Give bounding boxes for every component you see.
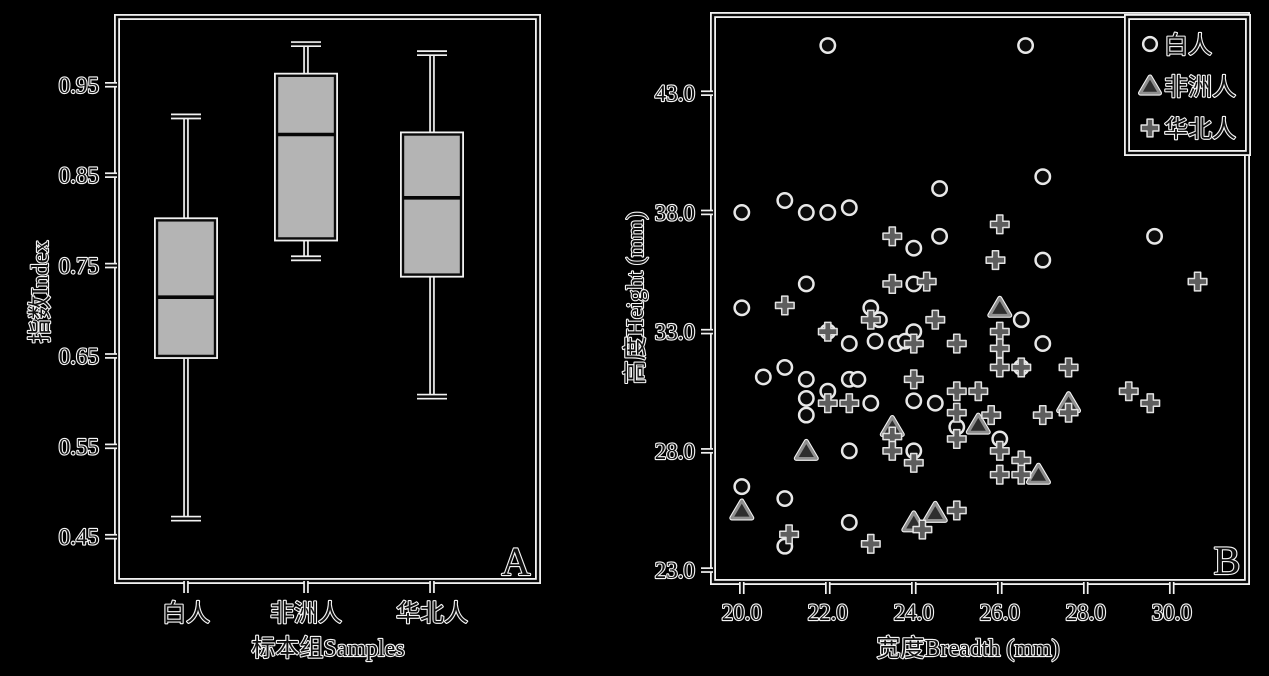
series-circle [735,38,1162,553]
plus-marker [776,296,795,315]
plus-marker [990,358,1009,377]
circle-marker [868,334,882,348]
circle-marker [799,391,813,405]
plus-marker [990,339,1009,358]
panel-a-boxes [157,44,461,519]
iqr-box [157,220,215,356]
legend-label: 华北人 [1164,116,1236,143]
circle-marker [1036,253,1050,267]
plus-marker [861,535,880,554]
plus-marker [818,394,837,413]
plus-marker [947,382,966,401]
iqr-box [277,76,335,239]
plus-marker [1119,382,1138,401]
plus-marker [904,453,923,472]
box-0 [157,116,215,518]
iqr-box [403,135,461,275]
plus-marker [1141,394,1160,413]
plus-marker [926,310,945,329]
circle-marker [1143,37,1157,51]
plus-marker [1012,358,1031,377]
plus-marker [1059,358,1078,377]
plus-marker [986,251,1005,270]
circle-marker [842,515,856,529]
legend-label: 白人 [1164,32,1212,59]
figure-canvas: 0.450.550.650.750.850.95白人非洲人华北人 标本组Samp… [0,0,1269,676]
plus-marker [990,215,1009,234]
plus-marker [990,442,1009,461]
panel-a-yaxis-title: 指数Index [27,241,54,344]
circle-marker [907,394,921,408]
circle-marker [735,479,749,493]
y-tick-label: 33.0 [655,320,695,345]
circle-marker [1018,38,1032,52]
plus-marker [883,227,902,246]
circle-marker [756,370,770,384]
circle-marker [1014,313,1028,327]
panel-b-yaxis-title: 高度Height (mm) [622,212,649,385]
y-tick-label: 0.45 [59,525,99,550]
circle-marker [799,205,813,219]
circle-marker [799,408,813,422]
y-tick-label: 0.55 [59,434,99,459]
plus-marker [969,382,988,401]
y-tick-label: 0.75 [59,254,99,279]
circle-marker [778,491,792,505]
plus-marker [1188,272,1207,291]
x-tick-label: 20.0 [722,600,762,625]
circle-marker [799,277,813,291]
panel-a-xaxis-title: 标本组Samples [251,635,404,662]
circle-marker [1147,229,1161,243]
circle-marker [821,38,835,52]
y-tick-label: 0.85 [59,163,99,188]
figure: 0.450.550.650.750.850.95白人非洲人华北人 标本组Samp… [0,0,1269,676]
x-tick-label: 24.0 [894,600,934,625]
circle-marker [864,396,878,410]
circle-marker [735,205,749,219]
x-tick-label: 白人 [162,600,210,627]
circle-marker [821,205,835,219]
circle-marker [799,372,813,386]
panel-b-letter: B [1214,538,1241,583]
y-tick-label: 43.0 [655,81,695,106]
plus-marker [990,465,1009,484]
plus-marker [883,275,902,294]
circle-marker [928,396,942,410]
circle-marker [778,360,792,374]
panel-a-letter: A [502,539,531,584]
plus-marker [840,394,859,413]
legend-label: 非洲人 [1164,74,1236,101]
circle-marker [851,372,865,386]
y-tick-label: 23.0 [655,558,695,583]
plus-marker [947,430,966,449]
circle-marker [932,229,946,243]
plus-marker [947,501,966,520]
series-plus [776,215,1207,553]
box-2 [403,53,461,396]
circle-marker [842,200,856,214]
plus-marker [990,322,1009,341]
x-tick-label: 28.0 [1066,600,1106,625]
panel-a-boxplot: 0.450.550.650.750.850.95白人非洲人华北人 标本组Samp… [27,17,538,662]
panel-b-xaxis-title: 宽度Breadth (mm) [876,635,1059,662]
plus-marker [904,370,923,389]
plus-marker [818,322,837,341]
plus-marker [947,403,966,422]
circle-marker [842,444,856,458]
panel-b-scatterplot: 23.028.033.038.043.020.022.024.026.028.0… [622,15,1248,662]
circle-marker [1036,336,1050,350]
x-tick-label: 华北人 [396,600,468,627]
panel-b-ticks: 23.028.033.038.043.020.022.024.026.028.0… [655,81,1192,625]
circle-marker [842,336,856,350]
plus-marker [1033,406,1052,425]
x-tick-label: 30.0 [1152,600,1192,625]
y-tick-label: 28.0 [655,439,695,464]
x-tick-label: 22.0 [808,600,848,625]
plus-marker [883,442,902,461]
x-tick-label: 非洲人 [270,600,342,627]
plus-marker [947,334,966,353]
circle-marker [1036,169,1050,183]
y-tick-label: 0.65 [59,344,99,369]
legend: 白人非洲人华北人 [1127,17,1248,153]
x-tick-label: 26.0 [980,600,1020,625]
circle-marker [907,241,921,255]
y-tick-label: 0.95 [59,73,99,98]
circle-marker [932,181,946,195]
circle-marker [778,193,792,207]
y-tick-label: 38.0 [655,200,695,225]
box-1 [277,44,335,258]
circle-marker [735,301,749,315]
